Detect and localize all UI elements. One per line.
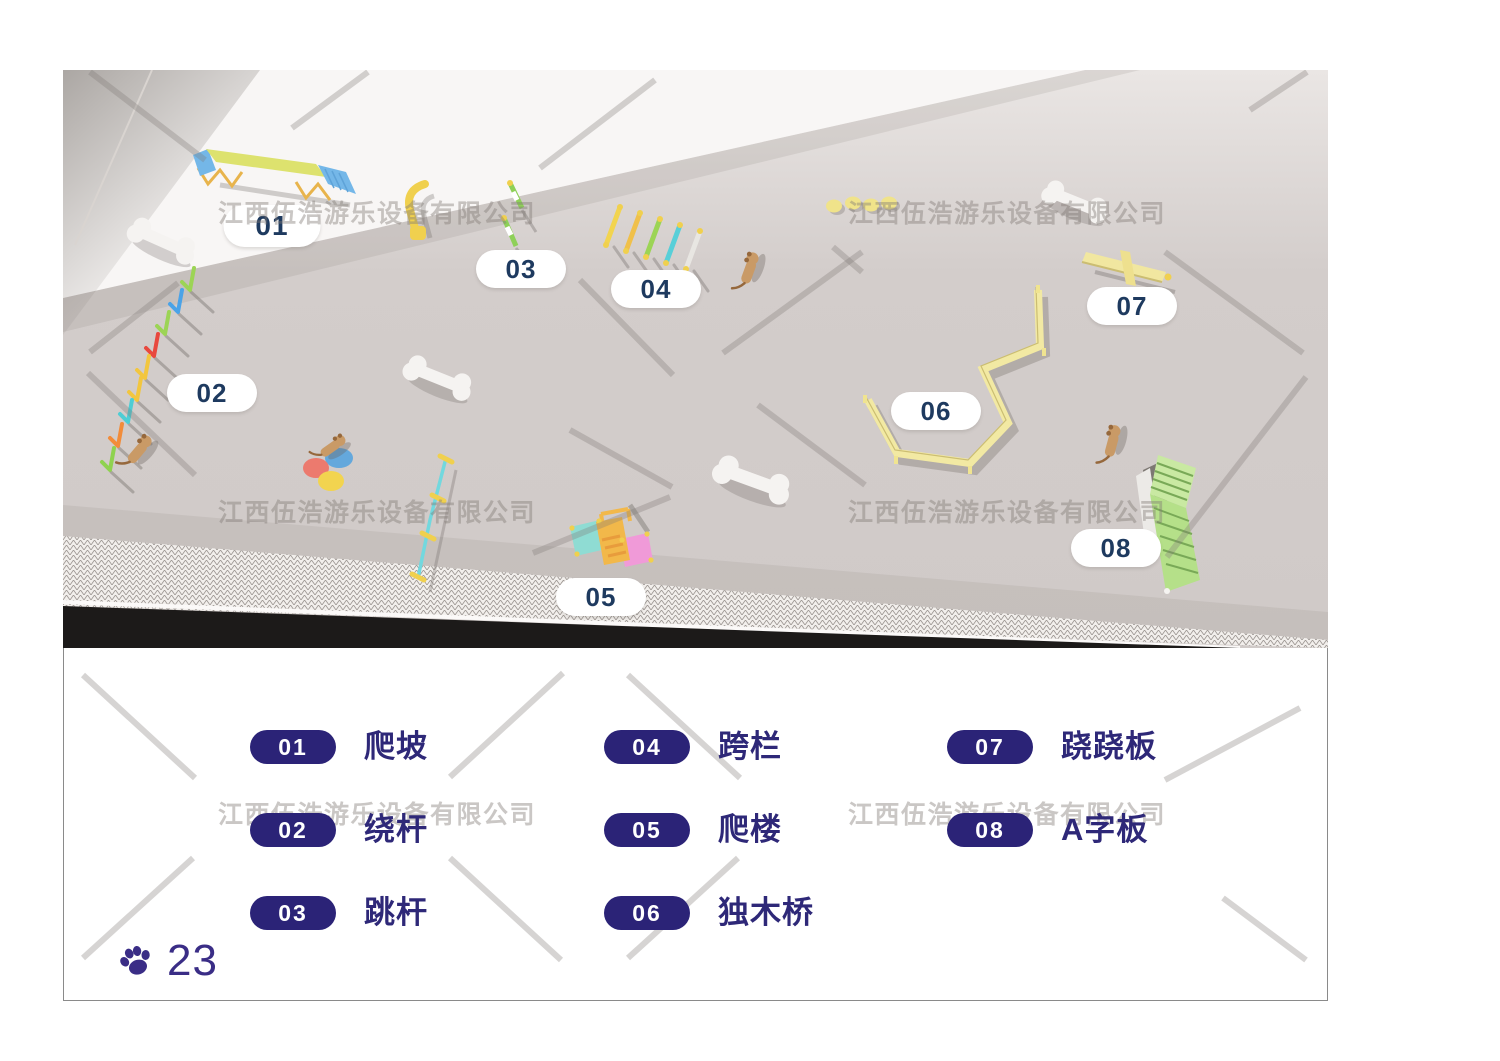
callout-05: 05 — [556, 578, 646, 616]
legend-label-03: 跳杆 — [364, 896, 428, 930]
callout-08: 08 — [1071, 529, 1161, 567]
legend-label-01: 爬坡 — [364, 730, 428, 764]
callout-06: 06 — [891, 392, 981, 430]
callout-01: 01 — [224, 205, 321, 247]
legend-item-05: 05 爬楼 — [604, 813, 814, 847]
catalog-page: { "watermark": { "text": "江西伍浩游乐设备有限公司",… — [0, 0, 1500, 1061]
legend-badge-06: 06 — [604, 896, 690, 930]
legend-label-02: 绕杆 — [364, 813, 428, 847]
legend-badge-01: 01 — [250, 730, 336, 764]
legend-item-03: 03 跳杆 — [250, 896, 428, 930]
legend-label-06: 独木桥 — [718, 896, 814, 930]
legend-item-08: 08 A字板 — [947, 813, 1157, 847]
legend-column-1: 01 爬坡 02 绕杆 03 跳杆 — [250, 730, 428, 930]
legend-item-06: 06 独木桥 — [604, 896, 814, 930]
legend-badge-02: 02 — [250, 813, 336, 847]
legend-label-07: 跷跷板 — [1061, 730, 1157, 764]
page-number: 23 — [167, 936, 218, 986]
legend-badge-04: 04 — [604, 730, 690, 764]
legend-badge-08: 08 — [947, 813, 1033, 847]
legend-item-02: 02 绕杆 — [250, 813, 428, 847]
legend-badge-03: 03 — [250, 896, 336, 930]
legend-column-3: 07 跷跷板 08 A字板 — [947, 730, 1157, 847]
callout-07: 07 — [1087, 287, 1177, 325]
legend-item-01: 01 爬坡 — [250, 730, 428, 764]
legend-item-07: 07 跷跷板 — [947, 730, 1157, 764]
legend-item-04: 04 跨栏 — [604, 730, 814, 764]
callout-02: 02 — [167, 374, 257, 412]
legend-label-04: 跨栏 — [718, 730, 782, 764]
legend-badge-07: 07 — [947, 730, 1033, 764]
legend-badge-05: 05 — [604, 813, 690, 847]
footer: 23 — [113, 936, 218, 986]
legend-column-2: 04 跨栏 05 爬楼 06 独木桥 — [604, 730, 814, 930]
callout-03: 03 — [476, 250, 566, 288]
paw-icon — [113, 939, 159, 983]
callout-04: 04 — [611, 270, 701, 308]
legend-label-08: A字板 — [1061, 813, 1148, 847]
legend-label-05: 爬楼 — [718, 813, 782, 847]
